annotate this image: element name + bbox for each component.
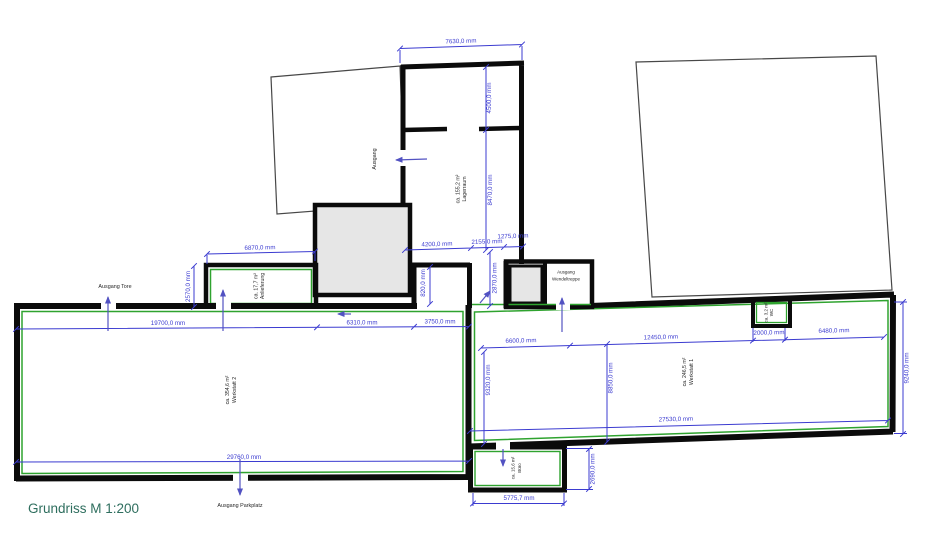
corridor-door-arrow (480, 291, 490, 303)
buero-label: Büro (517, 463, 522, 473)
dim-4500-label: 4500,0 mm (486, 83, 493, 114)
dim-29760-label: 29760,0 mm (227, 454, 261, 461)
ausgang-label: Ausgang (372, 148, 378, 169)
dim-8850-label: 8850,0 mm (608, 363, 615, 394)
gray-room (510, 266, 542, 303)
dim-9240-label: 9240,0 mm (904, 353, 911, 384)
dim-6480-label: 6480,0 mm (818, 327, 849, 335)
buero-area-label: ca. 15,6 m² (511, 456, 516, 479)
ausgang-tore-label: Ausgang Tore (98, 284, 131, 290)
dim-1275-label: 1275,0 mm (497, 232, 528, 240)
dim-5775-label: 5775,7 mm (504, 495, 535, 502)
lagerraum-area-label: ca. 155,2 m² (456, 174, 462, 203)
werkstatt1-area-label: ca. 246,5 m² (682, 357, 688, 386)
ausgang-wendeltreppe-label-line1: Ausgang (557, 270, 575, 275)
existing-building-left-outline (271, 66, 405, 214)
dim-5775: 5775,7 mm (470, 493, 567, 506)
wc-label: WC (769, 308, 774, 316)
dim-6600-label: 6600,0 mm (505, 337, 536, 345)
dim-820-label: 820,0 mm (420, 269, 427, 297)
dim-2690: 2690,0 mm (566, 446, 597, 492)
door-gap-wendeltreppe (556, 301, 570, 311)
drawing-title: Grundriss M 1:200 (28, 501, 139, 516)
dim-820: 820,0 mm (420, 264, 433, 307)
corridor-walls (470, 261, 507, 308)
dim-2570-label: 2570,0 mm (185, 271, 192, 302)
dim-2870-label: 2870,0 mm (492, 263, 499, 294)
dim-4200-label: 4200,0 mm (421, 240, 452, 248)
wc-area-label: ca. 3,2 m² (764, 302, 769, 323)
werkstatt2-label: Werkstatt 2 (232, 377, 238, 403)
ausgang-parkplatz-label: Ausgang Parkplatz (217, 503, 263, 509)
dim-2000-label: 2000,0 mm (753, 329, 784, 337)
dim-6870-label: 6870,0 mm (244, 244, 275, 252)
anlieferung-area-label: ca. 17,7 m² (254, 273, 260, 299)
dim-6870: 6870,0 mm (204, 244, 318, 264)
ausgang-wendeltreppe-label-line2: Wendeltreppe (552, 277, 580, 282)
floorplan-canvas: 7630,0 mm 4500,0 mm 8470,0 mm 4200,0 mm … (0, 0, 926, 560)
dim-7630-label: 7630,0 mm (445, 37, 476, 45)
werkstatt1-label: Werkstatt 1 (689, 359, 695, 385)
dim-6310-label: 6310,0 mm (347, 320, 378, 327)
dim-19700-label: 19700,0 mm (151, 320, 185, 327)
lagerraum-label: Lagerraum (462, 176, 468, 201)
gray-annex (315, 205, 410, 295)
small-rooms (470, 261, 593, 308)
dim-9240: 9240,0 mm (894, 299, 911, 437)
dim-7630: 7630,0 mm (397, 37, 525, 63)
existing-building-right-outline (636, 56, 892, 297)
dim-8470-label: 8470,0 mm (487, 175, 494, 206)
dim-9320-label: 9320,0 mm (485, 365, 492, 396)
dim-3750-label: 3750,0 mm (425, 319, 456, 326)
dim-2690-label: 2690,0 mm (590, 454, 597, 485)
floorplan-drawing: 7630,0 mm 4500,0 mm 8470,0 mm 4200,0 mm … (0, 0, 926, 560)
dim-2570: 2570,0 mm (185, 263, 197, 310)
door-gap-lagerraum (399, 150, 408, 166)
dim-27530-label: 27530,0 mm (659, 416, 694, 424)
dim-12450-label: 12450,0 mm (644, 334, 679, 342)
anlieferung-label: Anlieferung (260, 273, 266, 299)
werkstatt2-area-label: ca. 354,6 m² (225, 375, 231, 404)
